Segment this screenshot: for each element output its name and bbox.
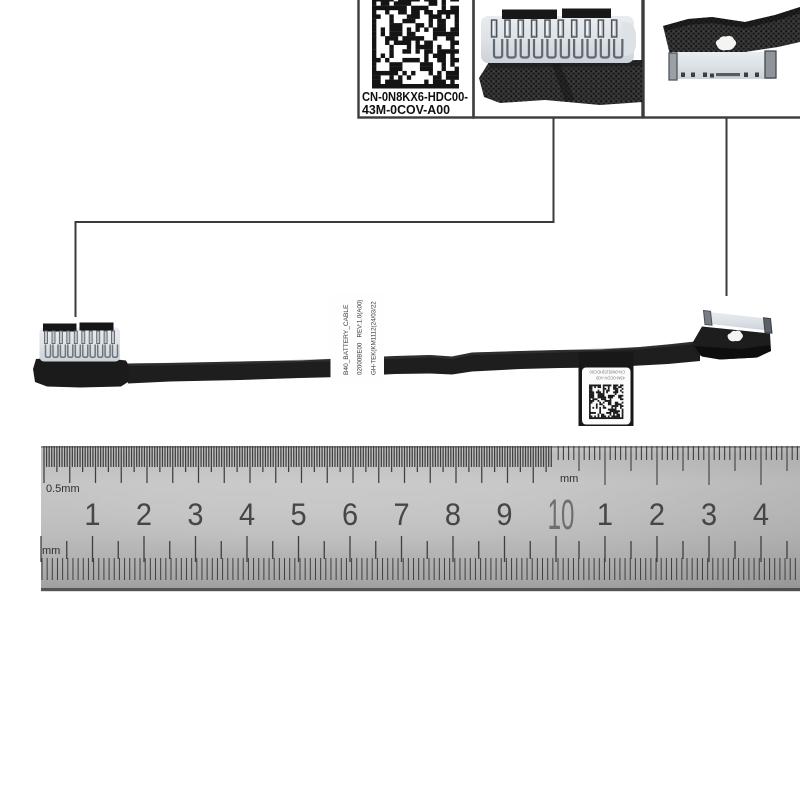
- svg-text:mm: mm: [560, 473, 578, 485]
- svg-text:1: 1: [84, 498, 100, 532]
- svg-text:1: 1: [597, 498, 613, 532]
- svg-text:43M-0COV-A00: 43M-0COV-A00: [595, 376, 625, 381]
- svg-text:CN-0N8)15(HDC00: CN-0N8)15(HDC00: [589, 370, 625, 375]
- svg-text:2: 2: [136, 498, 152, 532]
- svg-text:3: 3: [187, 498, 203, 532]
- svg-text:9: 9: [496, 498, 512, 532]
- svg-text:8: 8: [445, 498, 461, 532]
- svg-text:0.5mm: 0.5mm: [46, 483, 80, 495]
- svg-text:10: 10: [548, 491, 575, 539]
- svg-text:4: 4: [239, 498, 255, 532]
- svg-text:B40_BATTERY_CABLE: B40_BATTERY_CABLE: [343, 304, 350, 375]
- svg-text:GH-TEK(KM1112(24/03/22: GH-TEK(KM1112(24/03/22: [371, 301, 378, 375]
- svg-text:43M-0COV-A00: 43M-0COV-A00: [362, 102, 450, 117]
- svg-text:5: 5: [290, 498, 306, 532]
- svg-text:4: 4: [753, 498, 769, 532]
- svg-text:02000BE00 REV:1.0(A00): 02000BE00 REV:1.0(A00): [357, 300, 364, 375]
- svg-text:mm: mm: [42, 545, 60, 557]
- svg-text:2: 2: [649, 498, 665, 532]
- svg-text:6: 6: [342, 498, 358, 532]
- svg-text:7: 7: [393, 498, 409, 532]
- svg-text:3: 3: [701, 498, 717, 532]
